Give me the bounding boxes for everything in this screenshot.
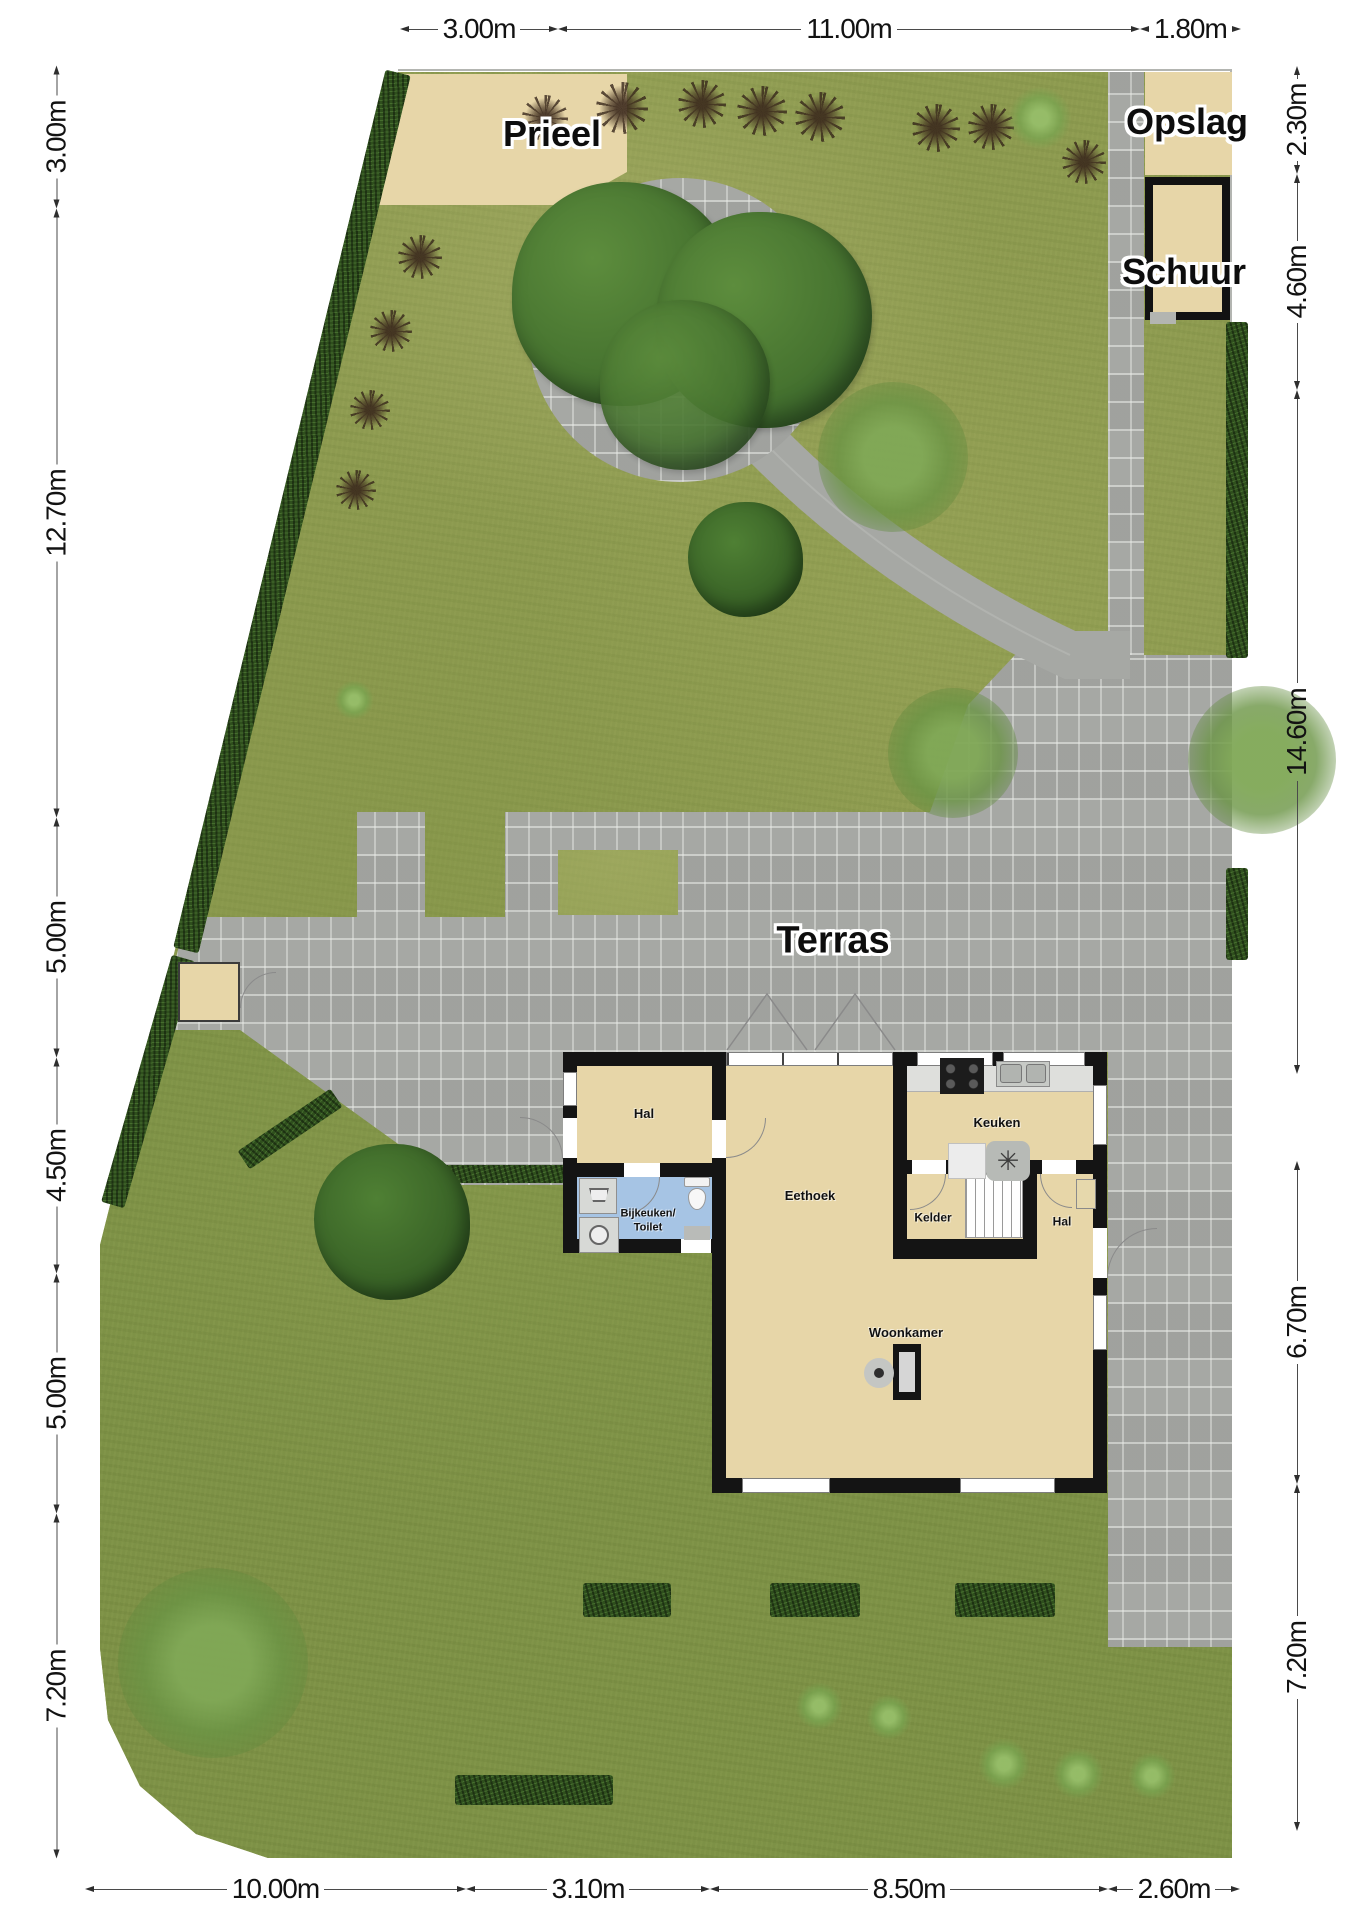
boiler-cabinet	[948, 1143, 986, 1179]
cabinet-hal-back	[1076, 1179, 1096, 1209]
door-arc-hal-west	[520, 1117, 563, 1159]
toilet-tank	[684, 1177, 710, 1187]
dimension-segment: 3.00m	[400, 14, 558, 44]
dimension-label: 12.70m	[41, 464, 73, 561]
dimension-line-bottom: 10.00m 3.10m 8.50m 2.60m	[85, 1874, 1240, 1904]
dimension-label: 11.00m	[801, 13, 896, 45]
window-keuken-east	[1093, 1085, 1107, 1145]
sliding-door-eethoek-north	[726, 1052, 893, 1066]
washing-machine-door	[589, 1225, 609, 1245]
sink-basin-left	[1000, 1064, 1022, 1083]
dimension-segment: 3.00m	[42, 66, 72, 209]
dimension-label: 10.00m	[227, 1873, 324, 1905]
label-room-hal-back: Hal	[1053, 1215, 1072, 1230]
dimension-segment: 1.80m	[1140, 14, 1240, 44]
stove-icon	[940, 1058, 984, 1094]
label-terras: Terras	[776, 920, 889, 963]
label-room-kelder: Kelder	[914, 1211, 951, 1226]
label-room-woonkamer: Woonkamer	[869, 1325, 943, 1341]
dimension-segment: 6.70m	[1282, 1161, 1312, 1484]
dimension-segment: 3.10m	[466, 1874, 710, 1904]
door-hal-to-eethoek	[712, 1120, 726, 1158]
dimension-label: 8.50m	[868, 1873, 951, 1905]
window-hal-west	[563, 1072, 577, 1106]
dimension-label: 5.00m	[41, 896, 73, 979]
dimension-line-top: 3.00m 11.00m 1.80m	[400, 14, 1240, 44]
dimension-label: 4.60m	[1281, 241, 1313, 324]
dimension-segment: 5.00m	[42, 1274, 72, 1514]
door-keuken-to-kelder	[912, 1160, 946, 1174]
dimension-segment: 12.70m	[42, 209, 72, 818]
dimension-label: 7.20m	[1281, 1616, 1313, 1699]
label-opslag: Opslag	[1126, 101, 1248, 143]
dimension-label: 6.70m	[1281, 1281, 1313, 1364]
dimension-line-left: 7.20m 5.00m 4.50m 5.00m 12.70m 3.00m	[42, 66, 72, 1859]
door-hal-west	[563, 1118, 577, 1158]
dimension-label: 5.00m	[41, 1352, 73, 1435]
dimension-segment: 11.00m	[558, 14, 1140, 44]
dimension-label: 1.80m	[1149, 13, 1232, 45]
fireplace-stove-dot	[874, 1368, 884, 1378]
fireplace-inner	[899, 1352, 915, 1392]
door-hal-to-bijkeuken	[624, 1163, 660, 1177]
dimension-label: 4.50m	[41, 1124, 73, 1207]
dimension-label: 2.30m	[1281, 79, 1313, 162]
label-room-hal-front: Hal	[634, 1106, 654, 1122]
door-hal-back-east	[1093, 1228, 1107, 1278]
dimension-segment: 7.20m	[1282, 1484, 1312, 1831]
label-room-keuken: Keuken	[974, 1115, 1021, 1131]
dimension-line-right-upper: 14.60m 4.60m 2.30m	[1282, 66, 1312, 1074]
fan-unit-icon: ✳	[986, 1141, 1030, 1181]
dimension-segment: 14.60m	[1282, 390, 1312, 1074]
window-woonkamer-east	[1093, 1295, 1107, 1350]
door-bijkeuken-south	[681, 1239, 711, 1253]
window-woonkamer-south-2	[960, 1478, 1055, 1493]
label-room-bijkeuken: Bijkeuken/ Toilet	[620, 1207, 675, 1235]
door-swing-marks-north	[715, 986, 905, 1054]
door-arc-hal-back-east	[1107, 1228, 1157, 1278]
label-prieel: Prieel	[503, 113, 601, 155]
sink-basin-right	[1026, 1064, 1046, 1083]
dimension-segment: 8.50m	[710, 1874, 1108, 1904]
label-schuur: Schuur	[1122, 251, 1246, 293]
dimension-label: 14.60m	[1281, 683, 1313, 780]
site-plan-canvas: ✳ Prieel Opslag Schuur Terras Hal Bijkeu…	[0, 0, 1358, 1920]
dimension-label: 7.20m	[41, 1645, 73, 1728]
dimension-label: 3.10m	[547, 1873, 630, 1905]
dimension-label: 2.60m	[1133, 1873, 1216, 1905]
doormat	[684, 1226, 710, 1240]
dimension-segment: 5.00m	[42, 818, 72, 1058]
window-woonkamer-south-1	[742, 1478, 830, 1493]
dimension-segment: 2.60m	[1108, 1874, 1240, 1904]
dimension-segment: 10.00m	[85, 1874, 466, 1904]
dimension-segment: 4.50m	[42, 1058, 72, 1274]
dimension-segment: 7.20m	[42, 1514, 72, 1859]
dimension-segment: 4.60m	[1282, 174, 1312, 390]
dimension-segment: 2.30m	[1282, 66, 1312, 174]
label-room-eethoek: Eethoek	[785, 1188, 836, 1204]
dimension-label: 3.00m	[438, 13, 521, 45]
dimension-label: 3.00m	[41, 96, 73, 179]
dimension-line-right-lower: 7.20m 6.70m	[1282, 1161, 1312, 1831]
stairs-kelder	[965, 1174, 1023, 1238]
door-keuken-to-hal-back	[1042, 1160, 1076, 1174]
